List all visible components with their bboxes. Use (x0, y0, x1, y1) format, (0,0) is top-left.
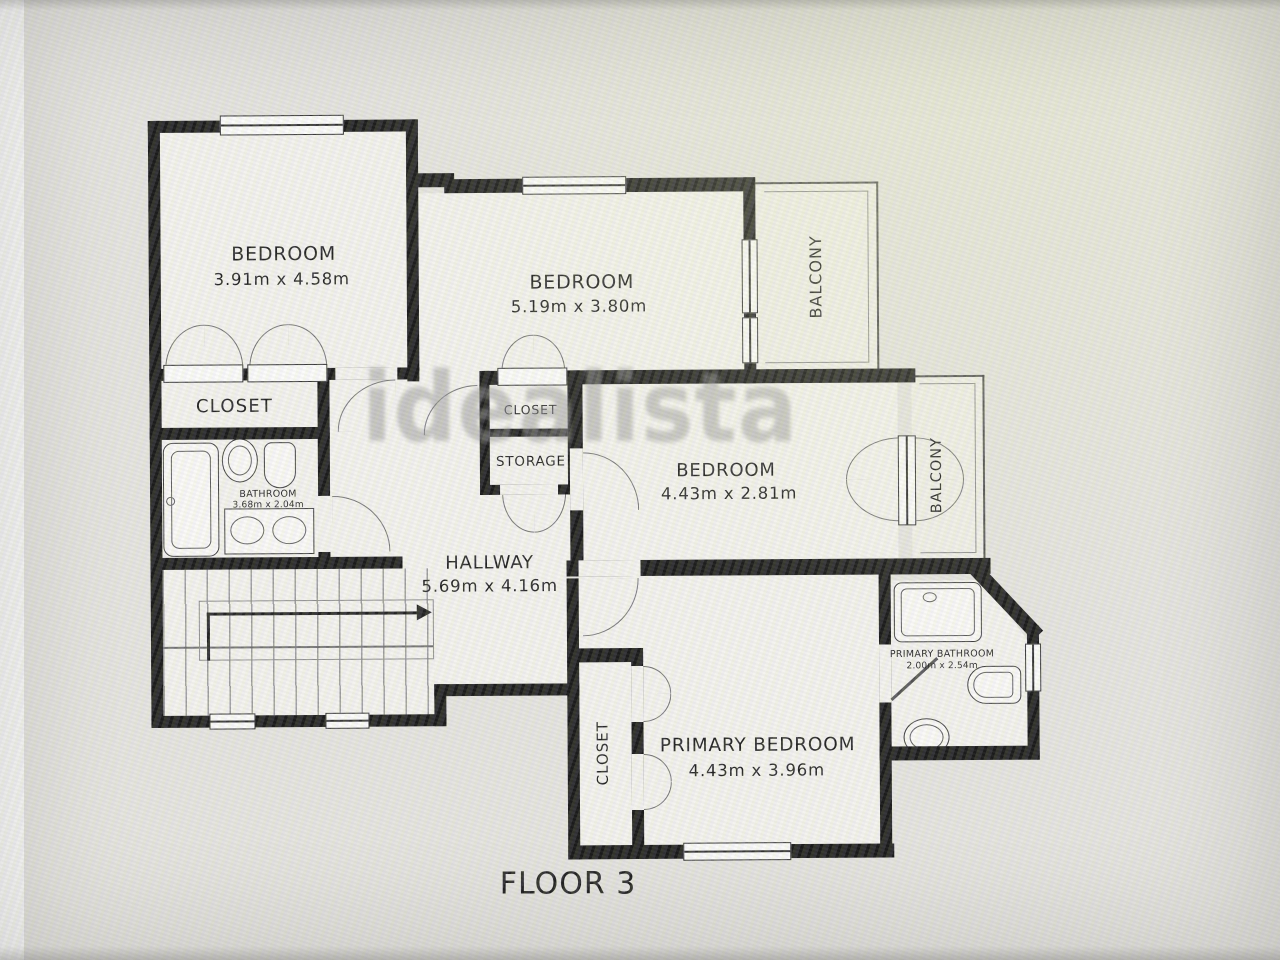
photo-edge (0, 0, 24, 960)
window (220, 115, 344, 136)
primary-bedroom-area (643, 575, 881, 845)
closet-door-threshold (163, 364, 243, 382)
bedroom-3-dims: 4.43m x 2.81m (661, 484, 797, 504)
sink-basin (272, 516, 306, 544)
door-opening (632, 754, 644, 810)
wall (317, 368, 330, 496)
balcony-french-door (898, 435, 917, 525)
balcony-mid-label: BALCONY (929, 437, 945, 513)
stair-direction-arrow (417, 604, 432, 620)
window (1025, 644, 1041, 692)
bathtub-drain (166, 497, 175, 506)
toilet-inner (228, 445, 252, 475)
wall (406, 119, 420, 381)
window (742, 239, 758, 313)
balcony-top-label: BALCONY (806, 235, 826, 318)
idealista-watermark: idealista (362, 352, 798, 464)
closet-bedroom1-label: CLOSET (196, 396, 273, 417)
toilet-inner (973, 672, 1013, 698)
window (325, 713, 369, 729)
bathroom-dims: 3.68m x 2.04m (232, 500, 303, 510)
door-opening (318, 496, 330, 552)
primary-bathroom-label: PRIMARY BATHROOM (890, 648, 994, 660)
closet-primary-label: CLOSET (593, 721, 611, 785)
wall (150, 427, 330, 440)
floor-plan: BEDROOM 3.91m x 4.58m BEDROOM 5.19m x 3.… (0, 0, 1280, 960)
primary-bathroom-dims: 2.00m x 2.54m (906, 661, 977, 671)
wall (880, 746, 1040, 761)
wall (151, 714, 446, 728)
window (522, 176, 626, 195)
primary-bedroom-label: PRIMARY BEDROOM (660, 734, 856, 756)
bedroom-2-dims: 5.19m x 3.80m (511, 296, 647, 316)
wall (434, 683, 579, 696)
bidet (264, 442, 296, 488)
bathtub-drain (923, 592, 937, 602)
bedroom-1-dims: 3.91m x 4.58m (214, 269, 350, 289)
door-opening (578, 560, 640, 576)
floorplan-photo: BEDROOM 3.91m x 4.58m BEDROOM 5.19m x 3.… (0, 0, 1280, 960)
wall (879, 574, 893, 857)
bathtub-inner (901, 588, 975, 636)
primary-bedroom-dims: 4.43m x 3.96m (689, 760, 825, 780)
bathroom-label: BATHROOM (239, 489, 296, 500)
bedroom-1-label: BEDROOM (231, 243, 336, 266)
wall (406, 173, 454, 187)
wall (567, 578, 581, 859)
bedroom-2-label: BEDROOM (529, 271, 634, 294)
floor-title: FLOOR 3 (500, 867, 637, 902)
door-opening (500, 485, 558, 495)
stair-stringer (199, 599, 434, 660)
window (209, 713, 255, 729)
wall (150, 556, 402, 570)
door-opening (631, 666, 643, 722)
window (683, 842, 791, 861)
sink-basin (230, 516, 264, 544)
bathtub-inner (171, 451, 212, 549)
hallway-dims: 5.69m x 4.16m (421, 576, 557, 596)
staircase (163, 568, 435, 716)
stair-arrow-line-v (207, 613, 210, 661)
hallway-label: HALLWAY (445, 552, 534, 574)
closet-door-threshold (247, 364, 327, 382)
